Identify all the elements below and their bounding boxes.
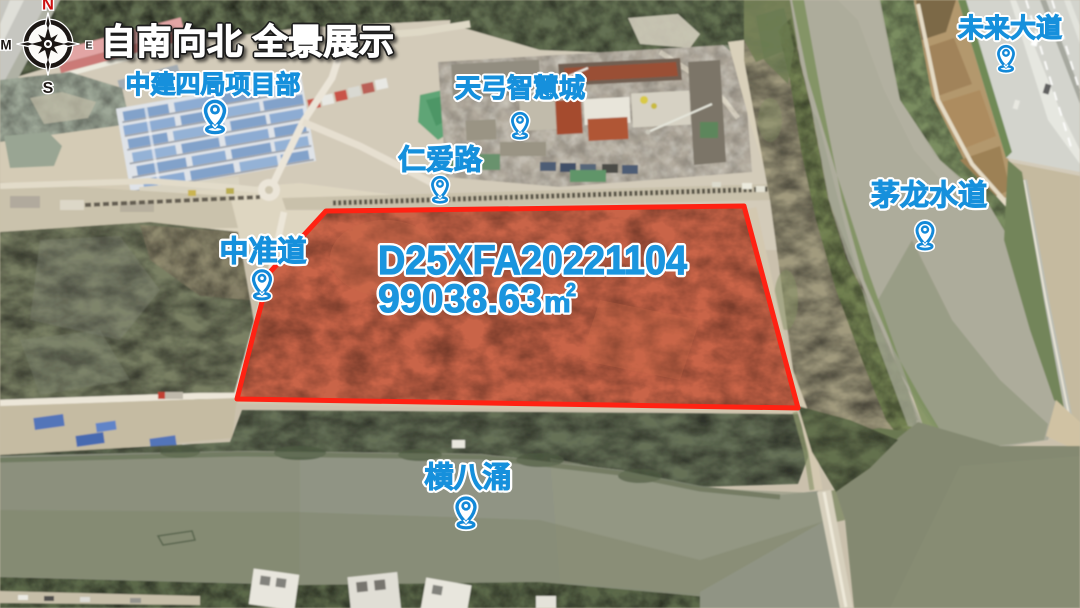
svg-text:99038.63: 99038.63 xyxy=(378,277,542,321)
svg-text:中建四局项目部: 中建四局项目部 xyxy=(125,70,300,99)
svg-text:天弓智慧城: 天弓智慧城 xyxy=(455,73,585,103)
svg-text:横八涌: 横八涌 xyxy=(424,461,511,494)
svg-text:茅龙水道: 茅龙水道 xyxy=(871,179,987,212)
svg-text:中准道: 中准道 xyxy=(219,235,306,268)
svg-text:N: N xyxy=(42,0,54,14)
svg-text:未来大道: 未来大道 xyxy=(958,13,1062,43)
svg-text:E: E xyxy=(85,40,92,52)
svg-text:M: M xyxy=(0,38,11,53)
svg-text:S: S xyxy=(43,80,54,97)
svg-text:仁爱路: 仁爱路 xyxy=(398,144,483,175)
svg-text:自南向北 全景展示: 自南向北 全景展示 xyxy=(101,22,394,62)
svg-text:2: 2 xyxy=(566,280,576,300)
